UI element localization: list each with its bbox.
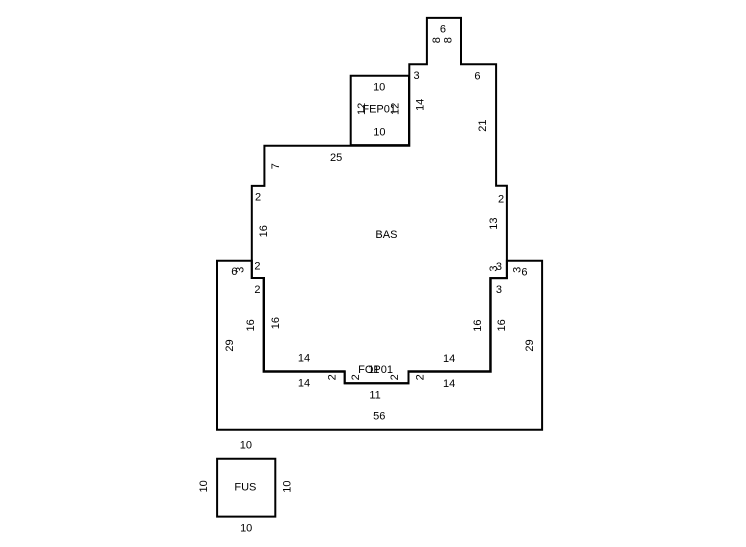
svg-text:10: 10 — [373, 82, 385, 94]
svg-text:7: 7 — [270, 163, 282, 169]
svg-text:8: 8 — [443, 37, 455, 43]
svg-text:2: 2 — [327, 374, 339, 380]
svg-text:8: 8 — [431, 37, 443, 43]
svg-text:29: 29 — [524, 339, 536, 351]
svg-text:FOP01: FOP01 — [358, 364, 393, 376]
svg-text:3: 3 — [413, 70, 419, 82]
svg-text:11: 11 — [369, 390, 380, 402]
svg-text:6: 6 — [521, 267, 527, 279]
svg-text:21: 21 — [477, 119, 489, 131]
svg-text:FUS: FUS — [234, 481, 256, 493]
svg-text:2: 2 — [389, 374, 401, 380]
svg-text:BAS: BAS — [375, 229, 397, 241]
svg-text:16: 16 — [472, 319, 484, 331]
svg-text:29: 29 — [224, 339, 236, 351]
svg-text:2: 2 — [255, 191, 261, 203]
svg-text:2: 2 — [498, 194, 504, 206]
svg-text:2: 2 — [254, 261, 260, 273]
svg-text:14: 14 — [298, 378, 310, 390]
svg-text:10: 10 — [373, 127, 385, 139]
svg-text:2: 2 — [414, 374, 426, 380]
svg-text:2: 2 — [254, 284, 260, 296]
svg-text:16: 16 — [258, 225, 270, 237]
svg-text:10: 10 — [240, 523, 252, 535]
svg-text:14: 14 — [443, 378, 455, 390]
svg-text:13: 13 — [488, 217, 500, 229]
svg-text:10: 10 — [240, 439, 252, 451]
svg-text:2: 2 — [350, 374, 362, 380]
svg-text:3: 3 — [496, 284, 502, 296]
svg-text:12: 12 — [390, 103, 402, 115]
svg-text:16: 16 — [270, 317, 282, 329]
svg-text:6: 6 — [474, 70, 480, 82]
svg-text:10: 10 — [198, 480, 210, 492]
svg-text:14: 14 — [298, 353, 310, 365]
svg-text:10: 10 — [281, 480, 293, 492]
svg-text:3: 3 — [496, 261, 502, 273]
svg-text:16: 16 — [496, 319, 508, 331]
svg-text:56: 56 — [373, 411, 385, 423]
svg-text:14: 14 — [443, 353, 455, 365]
svg-text:6: 6 — [440, 24, 446, 36]
svg-text:3: 3 — [235, 267, 247, 273]
svg-text:25: 25 — [330, 152, 342, 164]
svg-text:14: 14 — [414, 99, 426, 111]
svg-text:16: 16 — [245, 319, 257, 331]
